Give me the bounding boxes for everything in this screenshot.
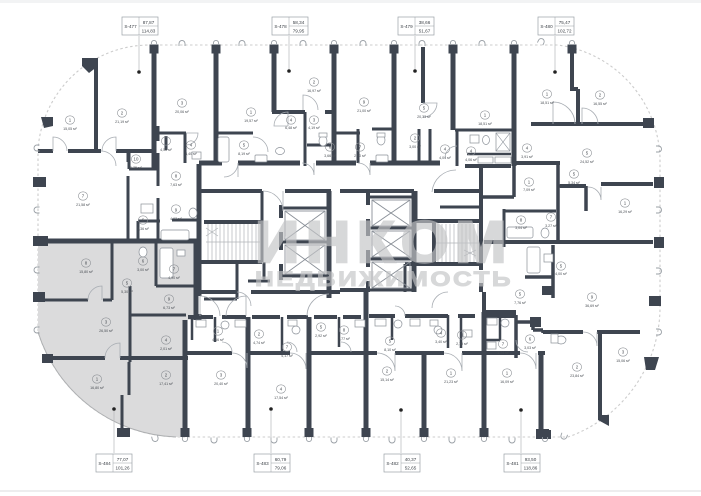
svg-text:3,27 м²: 3,27 м² [545,224,557,228]
svg-text:15,14 м²: 15,14 м² [380,378,394,382]
svg-text:38,66: 38,66 [419,20,431,25]
svg-text:75,47: 75,47 [559,20,571,25]
svg-text:36,69 м²: 36,69 м² [585,304,599,308]
svg-text:S-479: S-479 [400,24,413,29]
svg-text:93,50: 93,50 [525,457,537,462]
svg-text:19,57 м²: 19,57 м² [244,119,258,123]
svg-text:S-482: S-482 [386,461,399,466]
svg-text:6,48 м²: 6,48 м² [285,126,297,130]
svg-text:20,40 м²: 20,40 м² [214,382,228,386]
svg-text:4,19 м²: 4,19 м² [308,126,320,130]
svg-text:87,87: 87,87 [143,20,155,25]
svg-text:4,04 м²: 4,04 м² [439,156,451,160]
svg-text:58,34: 58,34 [293,20,305,25]
svg-text:60,79: 60,79 [275,457,287,462]
svg-text:7,09 м²: 7,09 м² [523,188,535,192]
svg-text:3,03 м²: 3,03 м² [524,346,536,350]
svg-text:15,05 м²: 15,05 м² [63,127,77,131]
svg-text:4,90 м²: 4,90 м² [168,276,180,280]
svg-text:3,74 м²: 3,74 м² [497,351,509,355]
svg-text:8,10 м²: 8,10 м² [384,348,396,352]
svg-text:23,84 м²: 23,84 м² [570,374,584,378]
svg-text:6,73 м²: 6,73 м² [163,306,175,310]
svg-text:4,06 м²: 4,06 м² [465,158,477,162]
svg-text:2,77 м²: 2,77 м² [338,337,350,341]
svg-text:79,95: 79,95 [293,29,305,34]
svg-text:S-481: S-481 [506,461,519,466]
svg-text:7,63 м²: 7,63 м² [170,183,182,187]
svg-text:24,52 м²: 24,52 м² [580,160,594,164]
svg-text:4,58 м²: 4,58 м² [160,148,172,152]
svg-text:21,58 м²: 21,58 м² [76,203,90,207]
svg-text:40,37: 40,37 [405,457,417,462]
svg-text:4,92 м²: 4,92 м² [170,217,182,221]
svg-text:79,06: 79,06 [275,466,287,471]
svg-text:17,41 м²: 17,41 м² [159,382,173,386]
svg-text:3,00 м²: 3,00 м² [137,268,149,272]
svg-text:4,00 м²: 4,00 м² [555,272,567,276]
svg-text:77,07: 77,07 [117,457,129,462]
svg-text:17,54 м²: 17,54 м² [274,396,288,400]
svg-text:2,90 м²: 2,90 м² [354,154,366,158]
svg-text:118,86: 118,86 [524,466,538,471]
svg-text:16,55 м²: 16,55 м² [593,102,607,106]
svg-text:26,50 м²: 26,50 м² [99,329,113,333]
svg-text:102,72: 102,72 [557,29,571,34]
svg-text:20,06 м²: 20,06 м² [175,110,189,114]
svg-text:16,80 м²: 16,80 м² [90,386,104,390]
svg-text:7,76 м²: 7,76 м² [514,301,526,305]
svg-text:16,29 м²: 16,29 м² [618,210,632,214]
svg-text:S-483: S-483 [256,461,269,466]
svg-text:3,40 м²: 3,40 м² [435,340,447,344]
svg-text:21,00 м²: 21,00 м² [357,109,371,113]
svg-text:3,40 м²: 3,40 м² [185,152,197,156]
svg-text:20,33 м²: 20,33 м² [417,115,431,119]
svg-text:3,91 м²: 3,91 м² [521,155,533,159]
svg-text:21,23 м²: 21,23 м² [444,380,458,384]
svg-text:52,65: 52,65 [405,466,417,471]
svg-text:16,97 м²: 16,97 м² [307,89,321,93]
svg-text:4,17 м²: 4,17 м² [281,354,293,358]
svg-text:3,00 м²: 3,00 м² [409,145,421,149]
svg-text:101,26: 101,26 [115,466,129,471]
svg-text:2,70 м²: 2,70 м² [456,342,468,346]
svg-text:4,66 м²: 4,66 м² [212,338,224,342]
svg-text:10: 10 [134,157,139,162]
svg-text:15,06 м²: 15,06 м² [616,359,630,363]
svg-text:5,30 м²: 5,30 м² [121,290,133,294]
svg-text:5,36 м²: 5,36 м² [137,227,149,231]
svg-text:5,34 м²: 5,34 м² [568,181,580,185]
svg-text:НЕДВИЖИМОСТЬ: НЕДВИЖИМОСТЬ [255,268,513,291]
svg-text:51,67: 51,67 [419,29,431,34]
svg-text:2,92 м²: 2,92 м² [315,334,327,338]
svg-text:3,66 м²: 3,66 м² [324,154,336,158]
svg-text:4,74 м²: 4,74 м² [253,341,265,345]
svg-text:16,09 м²: 16,09 м² [500,380,514,384]
svg-text:2,01 м²: 2,01 м² [160,347,172,351]
svg-text:8,19 м²: 8,19 м² [238,152,250,156]
svg-text:114,83: 114,83 [142,29,156,34]
svg-text:S-480: S-480 [540,24,553,29]
svg-text:S-478: S-478 [274,24,287,29]
svg-text:S-477: S-477 [124,24,137,29]
svg-text:21,19 м²: 21,19 м² [115,120,129,124]
svg-text:ИНКОМ: ИНКОМ [255,210,513,275]
svg-text:18,51 м²: 18,51 м² [478,122,492,126]
svg-text:S-484: S-484 [98,461,111,466]
svg-text:15,80 м²: 15,80 м² [79,270,93,274]
svg-text:3,04 м²: 3,04 м² [515,226,527,230]
svg-text:18,51 м²: 18,51 м² [540,101,554,105]
svg-text:1,35 м²: 1,35 м² [130,166,142,170]
